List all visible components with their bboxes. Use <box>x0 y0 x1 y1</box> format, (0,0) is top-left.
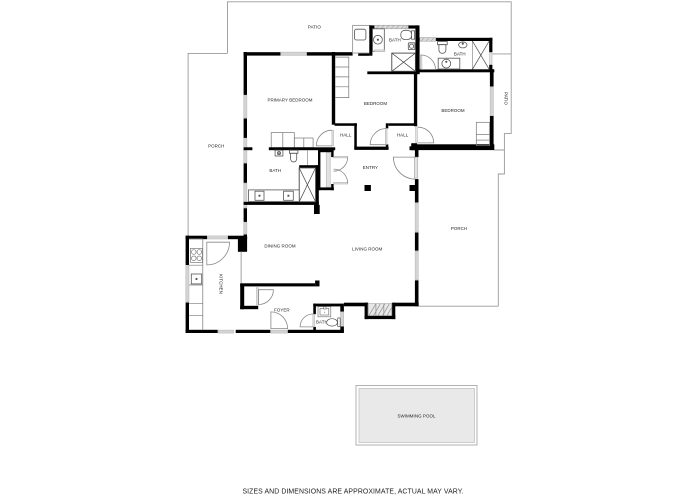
svg-text:HALL: HALL <box>340 133 352 138</box>
svg-text:FOYER: FOYER <box>274 308 290 313</box>
svg-text:DINING ROOM: DINING ROOM <box>264 243 295 248</box>
svg-text:SWIMMING POOL: SWIMMING POOL <box>397 414 435 419</box>
svg-text:PATIO: PATIO <box>504 92 509 105</box>
svg-text:PATIO: PATIO <box>308 25 321 30</box>
svg-text:PORCH: PORCH <box>208 143 224 148</box>
svg-text:BATH: BATH <box>454 52 466 57</box>
svg-text:ENTRY: ENTRY <box>363 165 378 170</box>
svg-text:BATH: BATH <box>269 168 281 173</box>
svg-text:LIVING ROOM: LIVING ROOM <box>352 247 382 252</box>
svg-text:BATH: BATH <box>389 38 401 43</box>
svg-text:PRIMARY BEDROOM: PRIMARY BEDROOM <box>267 97 312 102</box>
svg-text:BEDROOM: BEDROOM <box>364 101 388 106</box>
svg-text:PORCH: PORCH <box>451 226 467 231</box>
svg-text:BEDROOM: BEDROOM <box>441 108 465 113</box>
svg-text:BATH: BATH <box>316 320 328 325</box>
svg-text:SIZES AND DIMENSIONS ARE APPRO: SIZES AND DIMENSIONS ARE APPROXIMATE, AC… <box>242 489 463 496</box>
svg-text:KITCHEN: KITCHEN <box>219 274 224 294</box>
svg-text:HALL: HALL <box>397 133 409 138</box>
